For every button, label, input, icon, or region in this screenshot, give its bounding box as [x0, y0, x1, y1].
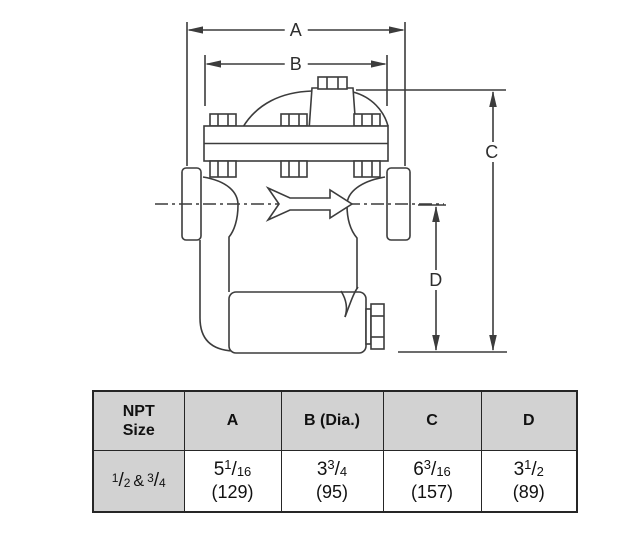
- cell-c: 63/16 (157): [383, 451, 481, 513]
- dim-label-c: C: [480, 142, 504, 162]
- col-header-b-dia: B (Dia.): [281, 391, 383, 451]
- col-header-d: D: [481, 391, 577, 451]
- page: A B C D NPT Size A B (Dia.) C D 1/2&3/4: [0, 0, 640, 539]
- bonnet-cap: [309, 88, 356, 130]
- arrowhead-left-icon: [187, 26, 203, 33]
- flow-direction-arrow-icon: [268, 188, 352, 220]
- dim-label-d: D: [424, 270, 448, 290]
- flange-bolts-bottom: [210, 161, 380, 177]
- arrowhead-up-icon: [489, 91, 497, 107]
- cell-a: 51/16 (129): [184, 451, 281, 513]
- arrowhead-right-icon: [389, 26, 405, 33]
- dim-label-a: A: [285, 20, 308, 40]
- arrowhead-down-icon: [432, 335, 440, 351]
- arrowhead-left-icon: [205, 60, 221, 67]
- col-header-c: C: [383, 391, 481, 451]
- arrowhead-up-icon: [432, 206, 440, 222]
- drain-plug: [366, 304, 384, 349]
- dimensions-table: NPT Size A B (Dia.) C D 1/2&3/4 51/16 (1…: [92, 390, 578, 513]
- cell-d: 31/2 (89): [481, 451, 577, 513]
- valve-body: [182, 77, 410, 353]
- cap-bolt: [318, 77, 347, 89]
- flange-bolts-top: [210, 114, 380, 126]
- arrowhead-right-icon: [371, 60, 387, 67]
- table-row: 1/2&3/4 51/16 (129) 33/4 (95) 63/16 (157…: [93, 451, 577, 513]
- cell-b: 33/4 (95): [281, 451, 383, 513]
- dimension-d: [398, 205, 507, 352]
- arrowhead-down-icon: [489, 335, 497, 351]
- col-header-a: A: [184, 391, 281, 451]
- steam-trap-dimension-diagram: [0, 0, 640, 382]
- col-header-npt-size: NPT Size: [93, 391, 184, 451]
- cell-npt-size: 1/2&3/4: [93, 451, 184, 513]
- table-header-row: NPT Size A B (Dia.) C D: [93, 391, 577, 451]
- dim-label-b: B: [285, 54, 308, 74]
